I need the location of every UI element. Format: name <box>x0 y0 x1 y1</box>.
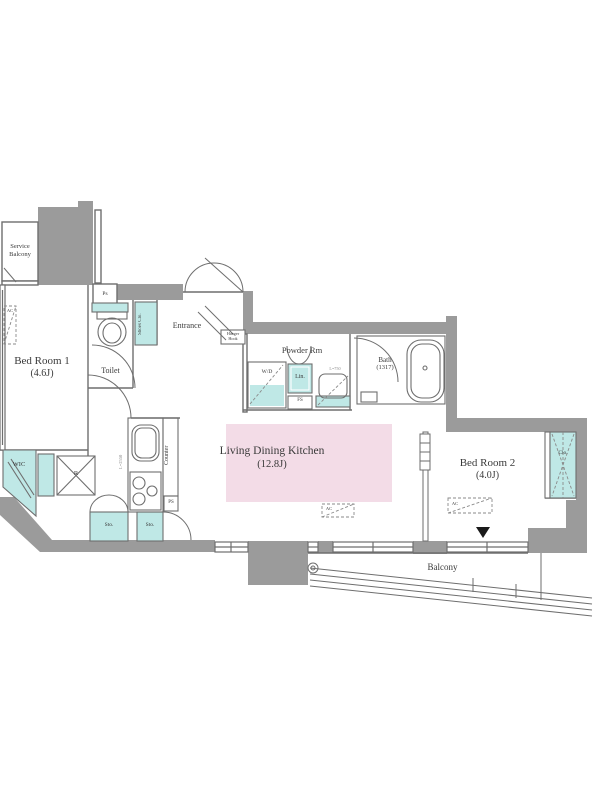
toilet-icon <box>97 312 127 346</box>
storage-right-label: Sto. <box>137 522 163 528</box>
linen-label: Lin. <box>288 374 312 381</box>
entrance-label: Entrance <box>158 321 216 330</box>
hanger-hook-label: HangerHook <box>221 332 245 342</box>
shoes-closet-label: Shoes Clo. <box>138 305 154 343</box>
refrigerator-label: R <box>57 470 95 478</box>
balcony-label: Balcony <box>400 562 485 573</box>
toilet-label: Toilet <box>88 366 133 375</box>
closet-bedroom2-label: Clo. <box>550 450 576 456</box>
washer-dryer-label: W/D <box>249 369 285 375</box>
ldk-label: Living Dining Kitchen(12.8J) <box>192 445 352 471</box>
ac-ldk-label: AC <box>323 506 335 511</box>
service-balcony-label: ServiceBalcony <box>2 243 38 258</box>
ac-bedroom1-label: AC <box>3 308 17 313</box>
ps-kitchen-label: PS <box>164 500 178 506</box>
wic-label: WIC <box>4 461 34 469</box>
washbasin-icon <box>319 374 347 398</box>
powder-room-label: Powder Rm <box>262 345 342 355</box>
bed-room-2-label: Bed Room 2(4.0J) <box>430 457 545 482</box>
window-marker-triangle <box>476 527 490 538</box>
washbasin-dimension-label: L=750 <box>318 367 352 372</box>
ps-upper-label: Ps <box>93 291 117 297</box>
ac-bedroom2-label: AC <box>449 501 461 506</box>
storage-left-label: Sto. <box>90 522 128 528</box>
kitchen-dimension-label: L=2550 <box>118 440 128 484</box>
bath-label: Bath(1317) <box>365 356 405 372</box>
fs-label: FS <box>288 398 312 404</box>
floor-plan: ServiceBalcony Bed Room 1(4.6J) Toilet E… <box>0 0 600 800</box>
counter-label: Counter <box>164 426 177 484</box>
bed-room-1-label: Bed Room 1(4.6J) <box>0 355 84 380</box>
